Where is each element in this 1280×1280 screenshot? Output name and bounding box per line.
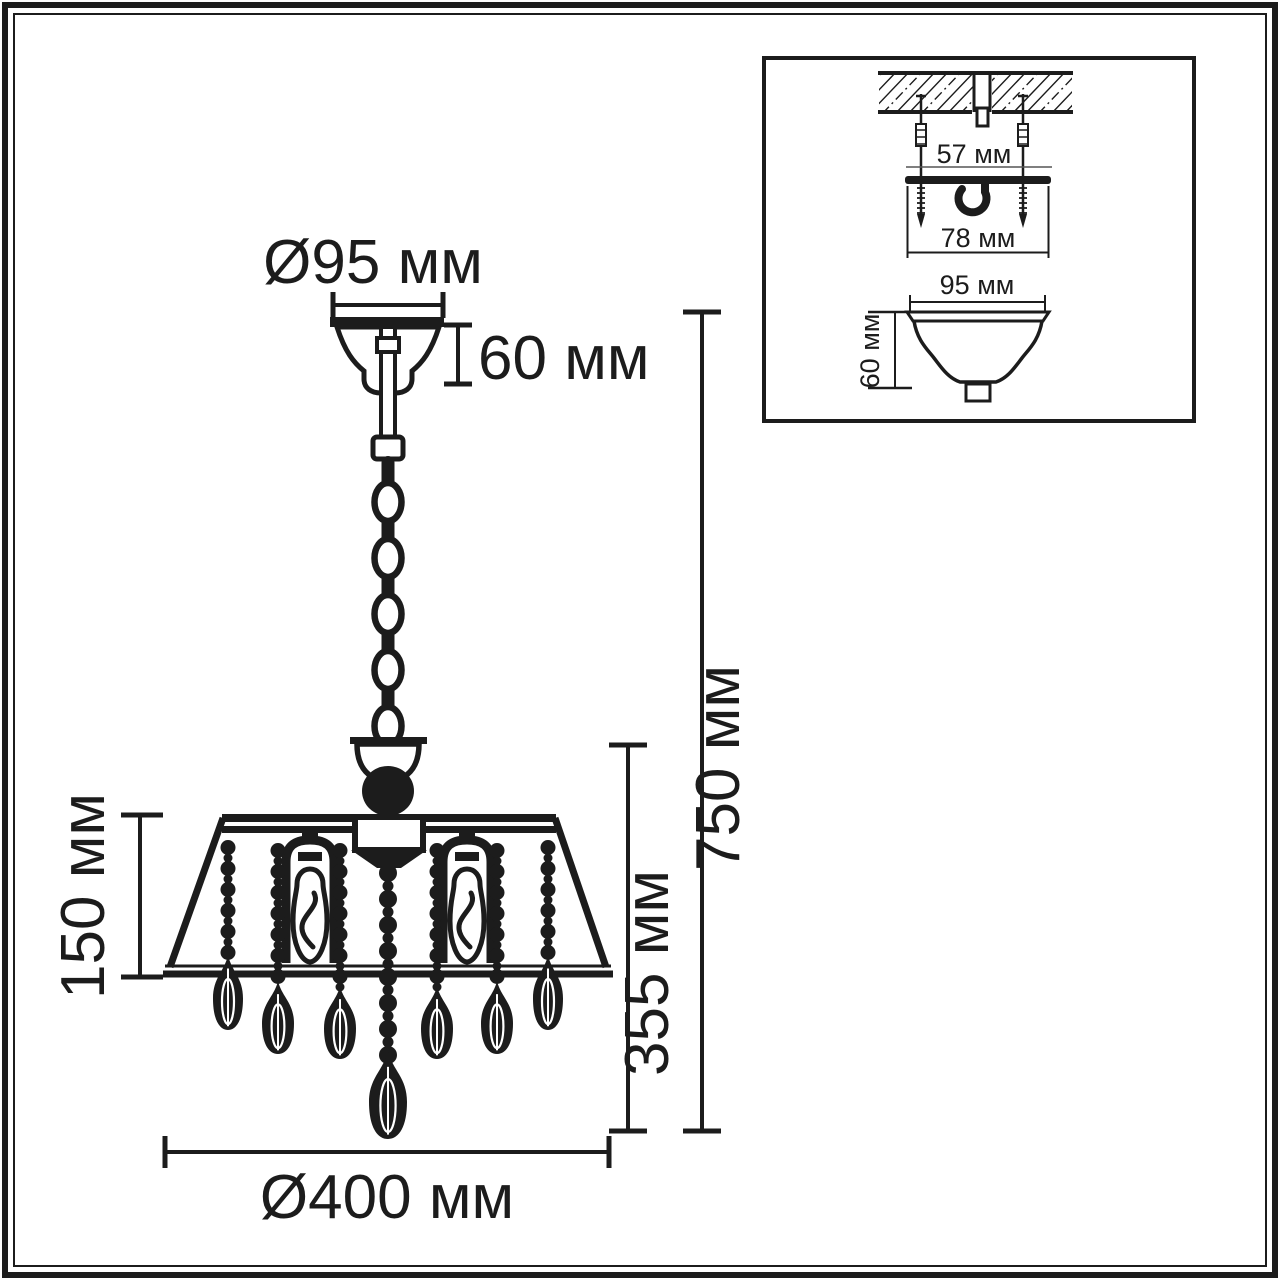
body-diameter-label: Ø400 мм <box>260 1163 514 1232</box>
bead <box>430 906 445 921</box>
bead-string <box>481 843 513 1054</box>
bead <box>383 959 394 970</box>
bead <box>271 906 286 921</box>
hanger-rod-stub <box>977 108 988 126</box>
chain-link <box>375 595 402 633</box>
bead <box>379 1020 397 1038</box>
bead-string <box>421 843 453 1059</box>
bead <box>383 1037 394 1048</box>
inset-canopy-diameter-label: 95 мм <box>940 270 1015 300</box>
bead <box>221 882 236 897</box>
bead <box>430 885 445 900</box>
bead <box>379 864 397 882</box>
frame-side-right <box>555 818 606 967</box>
bead <box>490 843 505 858</box>
bead <box>379 942 397 960</box>
dimension-drawing-page: { "labels": { "main": { "canopy_diameter… <box>0 0 1280 1280</box>
bead <box>379 968 397 986</box>
cup-rim <box>350 737 427 744</box>
bead <box>430 927 445 942</box>
bead <box>333 927 348 942</box>
bead <box>541 903 556 918</box>
bead-string <box>533 840 563 1030</box>
dim-body-height: 355 мм <box>609 745 682 1131</box>
anchor-body <box>1018 124 1028 146</box>
bead <box>541 840 556 855</box>
bulb-socket <box>298 852 322 861</box>
bead <box>383 1011 394 1022</box>
bead <box>333 906 348 921</box>
bulb-socket <box>455 852 479 861</box>
candle-bulb <box>450 869 484 962</box>
overall-height-label: 750 мм <box>684 665 753 871</box>
bead <box>430 948 445 963</box>
dim-overall-height: 750 мм <box>683 312 753 1131</box>
bead <box>333 969 348 984</box>
bead <box>221 840 236 855</box>
ceiling-mount-inset: 57 мм 78 мм 95 мм <box>764 58 1194 421</box>
chandelier-technical-drawing: Ø95 мм 60 мм <box>0 0 1280 1280</box>
anchor-body <box>916 124 926 146</box>
bead <box>333 885 348 900</box>
bead <box>271 864 286 879</box>
bead-string <box>369 864 407 1139</box>
bead <box>490 864 505 879</box>
cup-and-ball <box>350 737 427 816</box>
bead <box>271 843 286 858</box>
bead <box>383 881 394 892</box>
chain-link <box>375 483 402 521</box>
main-drawing: Ø95 мм 60 мм <box>49 228 753 1232</box>
bead <box>379 916 397 934</box>
chain-link <box>375 651 402 689</box>
dim-body-diameter: Ø400 мм <box>165 1136 609 1232</box>
canopy-diameter-label: Ø95 мм <box>263 228 483 297</box>
bead-string <box>324 843 356 1059</box>
bead <box>430 969 445 984</box>
center-hub <box>355 817 423 850</box>
chain-link <box>375 539 402 577</box>
bead <box>383 907 394 918</box>
candle-bulb-unit <box>443 831 491 963</box>
dim-canopy-height: 60 мм <box>444 324 649 393</box>
suspension-chain <box>375 456 402 758</box>
bead <box>221 924 236 939</box>
bead <box>490 906 505 921</box>
dim-shade-height: 150 мм <box>49 793 163 999</box>
bracket-width-label: 78 мм <box>941 223 1016 253</box>
bracket-bar <box>905 176 1051 184</box>
candle-bulb-unit <box>286 831 334 963</box>
bead <box>271 885 286 900</box>
decorative-ball <box>362 766 414 816</box>
bead <box>430 843 445 858</box>
bead <box>333 843 348 858</box>
body-height-label: 355 мм <box>613 870 682 1076</box>
canopy <box>330 317 444 459</box>
arch-knob <box>459 831 475 841</box>
bead <box>333 864 348 879</box>
dim-canopy-diameter: Ø95 мм <box>263 228 483 318</box>
rod-collar <box>377 338 399 352</box>
inset-canopy-height-label: 60 мм <box>855 314 885 389</box>
bead <box>271 948 286 963</box>
bead <box>490 927 505 942</box>
bead <box>541 882 556 897</box>
bead <box>541 861 556 876</box>
rod-connector <box>373 437 403 459</box>
inset-canopy-stub <box>966 384 990 401</box>
bead <box>490 885 505 900</box>
bead <box>221 861 236 876</box>
bead <box>490 948 505 963</box>
frame-side-left <box>170 818 223 967</box>
bead-string <box>213 840 243 1030</box>
bead <box>379 994 397 1012</box>
bead <box>383 933 394 944</box>
canopy-height-label: 60 мм <box>478 324 649 393</box>
bead-strings <box>213 840 563 1139</box>
bead <box>383 985 394 996</box>
bead <box>271 927 286 942</box>
bead <box>221 903 236 918</box>
arch-knob <box>302 831 318 841</box>
bead <box>379 890 397 908</box>
bead <box>541 924 556 939</box>
candle-bulb <box>293 869 327 962</box>
bead <box>333 948 348 963</box>
anchor-spacing-label: 57 мм <box>937 139 1012 169</box>
inset-canopy-plate <box>907 312 1049 321</box>
bead <box>430 864 445 879</box>
shade-height-label: 150 мм <box>49 793 118 999</box>
